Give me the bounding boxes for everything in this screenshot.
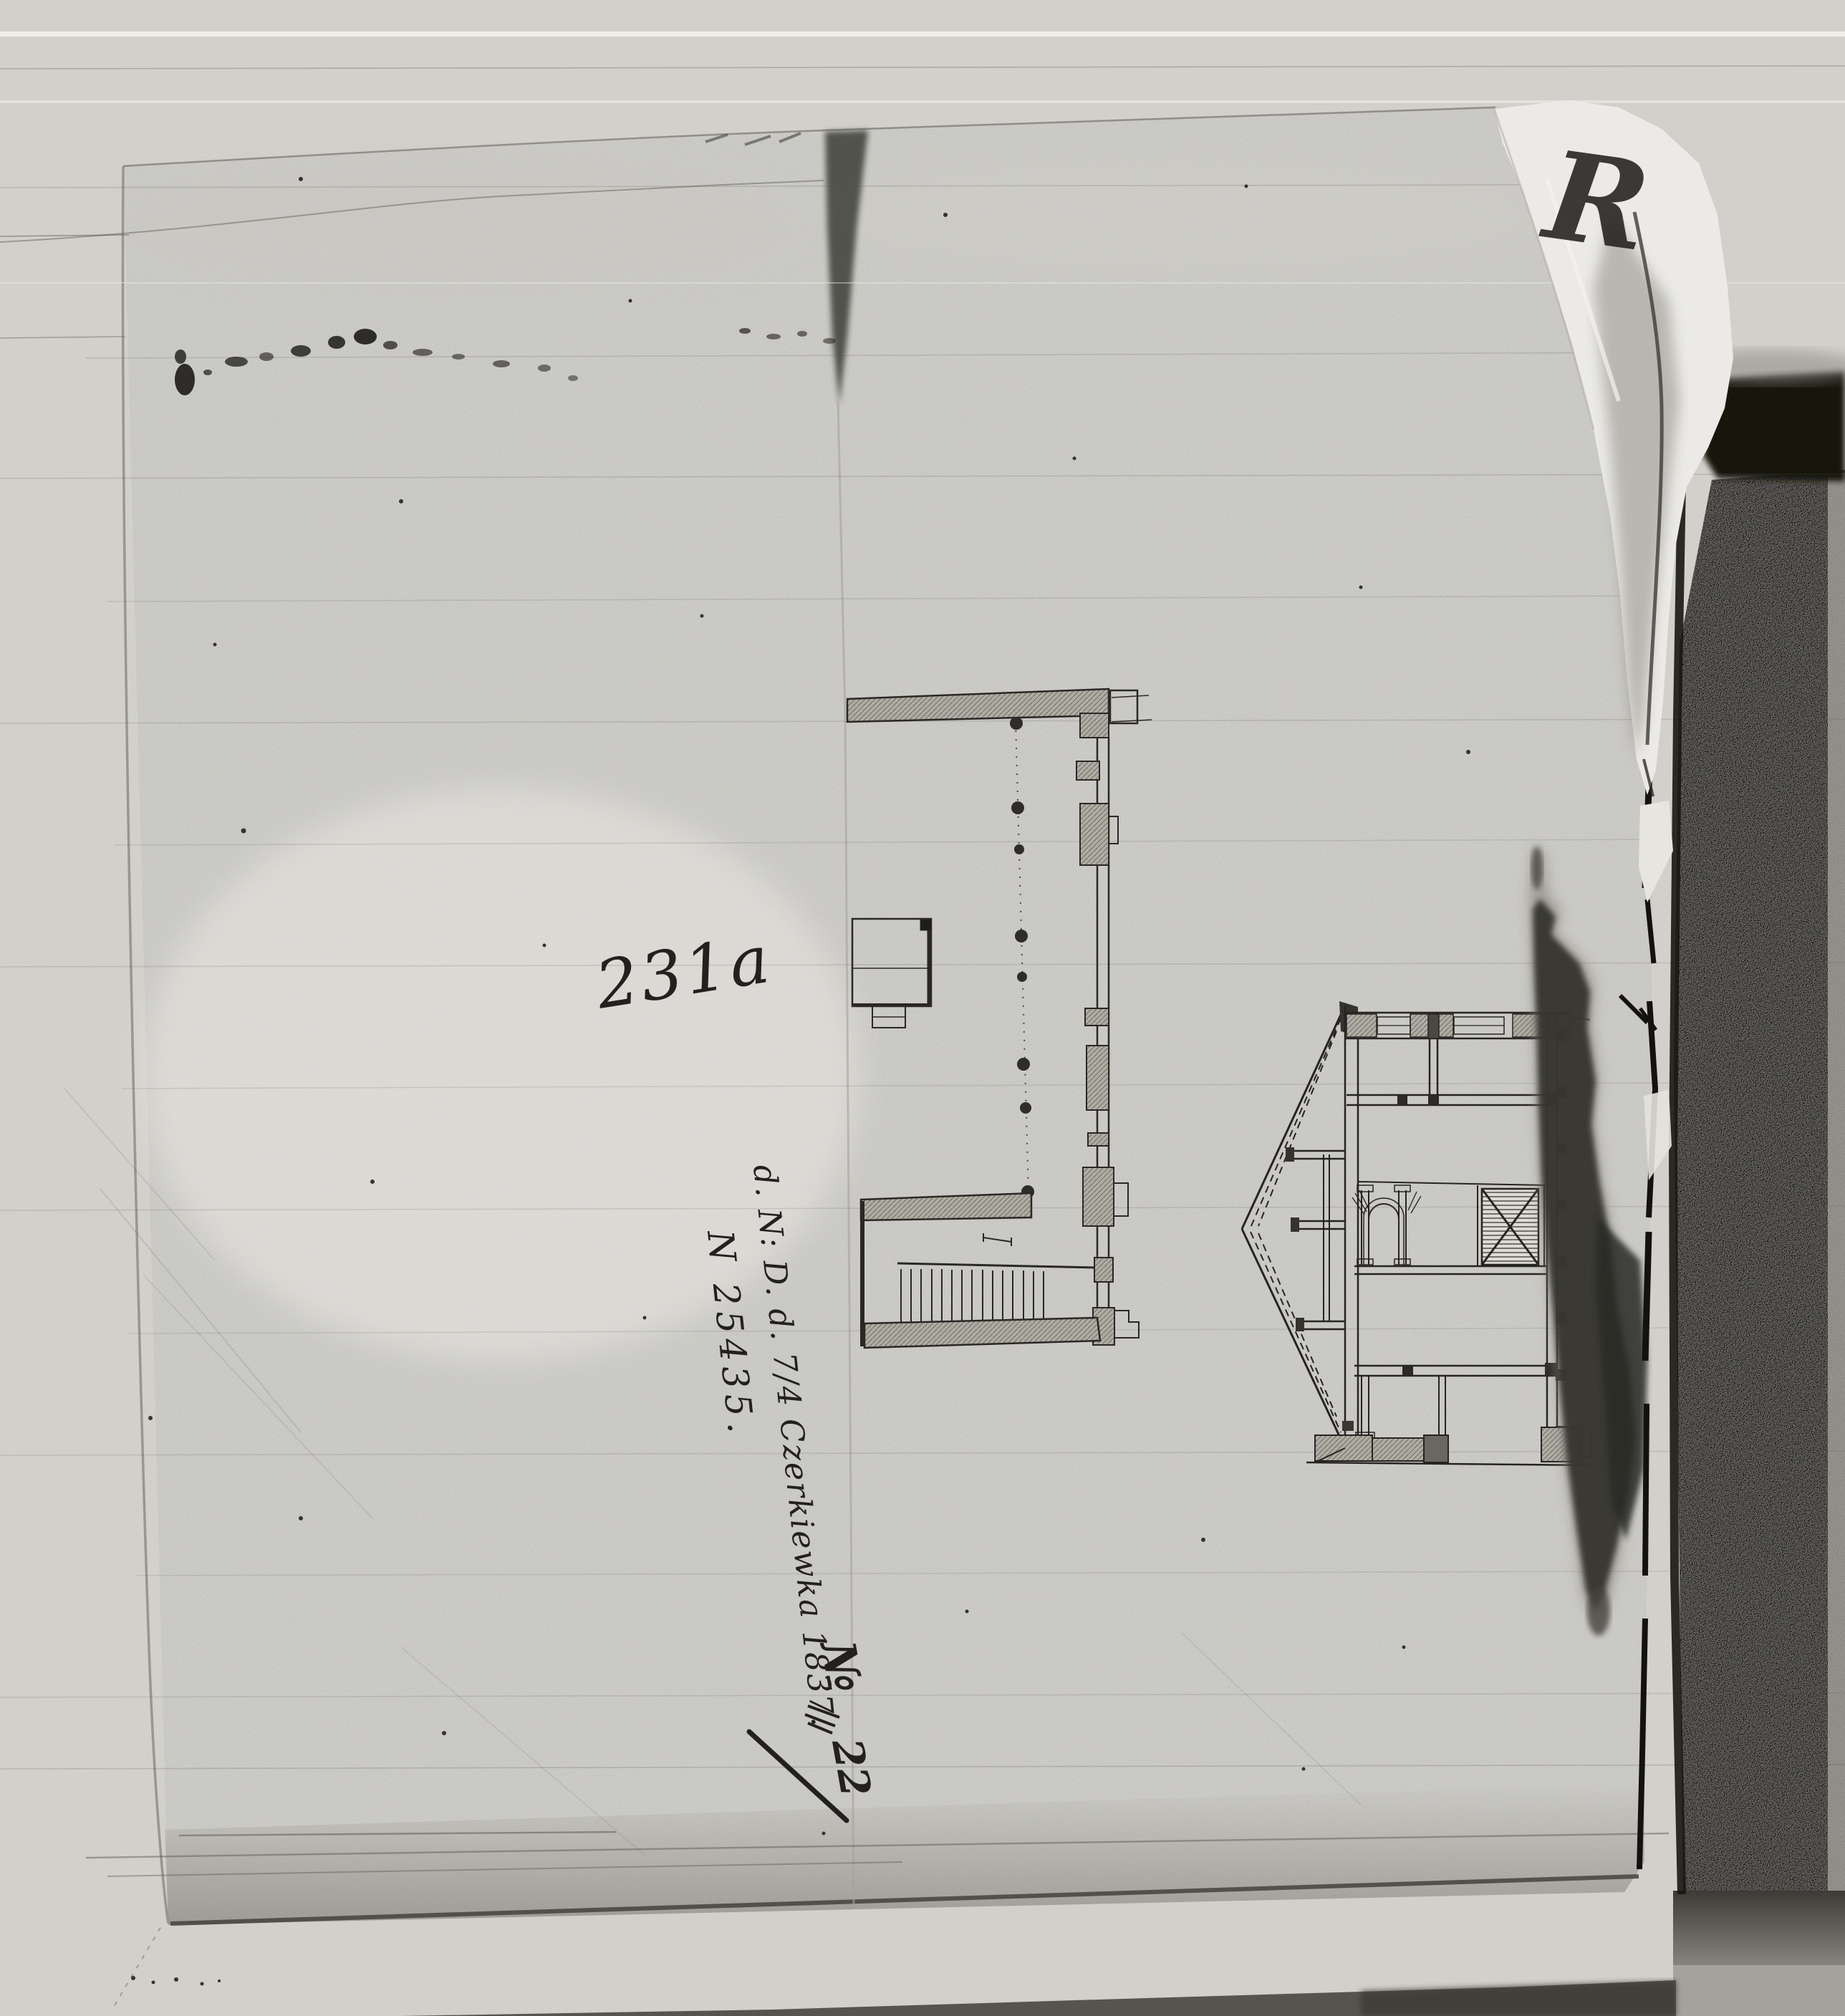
folio-number: 22 — [822, 1735, 880, 1800]
cover-bottom-shadow — [1673, 1891, 1845, 1965]
tone-patch — [122, 154, 795, 290]
photo-canvas: R 231a d. N: D. d. 7/4 Czerkiewka 1837. … — [0, 0, 1845, 2016]
archival-photo-of-architectural-drawing: R 231a d. N: D. d. 7/4 Czerkiewka 1837. … — [0, 0, 1845, 2016]
tone-patch — [143, 788, 859, 1361]
floor-below-cover — [1673, 1965, 1845, 2016]
book-cover-page — [1673, 470, 1845, 2016]
tone-patch — [824, 158, 1540, 272]
cover-right-edge — [1828, 473, 1845, 1891]
section-lattice-gate — [1478, 1185, 1544, 1266]
